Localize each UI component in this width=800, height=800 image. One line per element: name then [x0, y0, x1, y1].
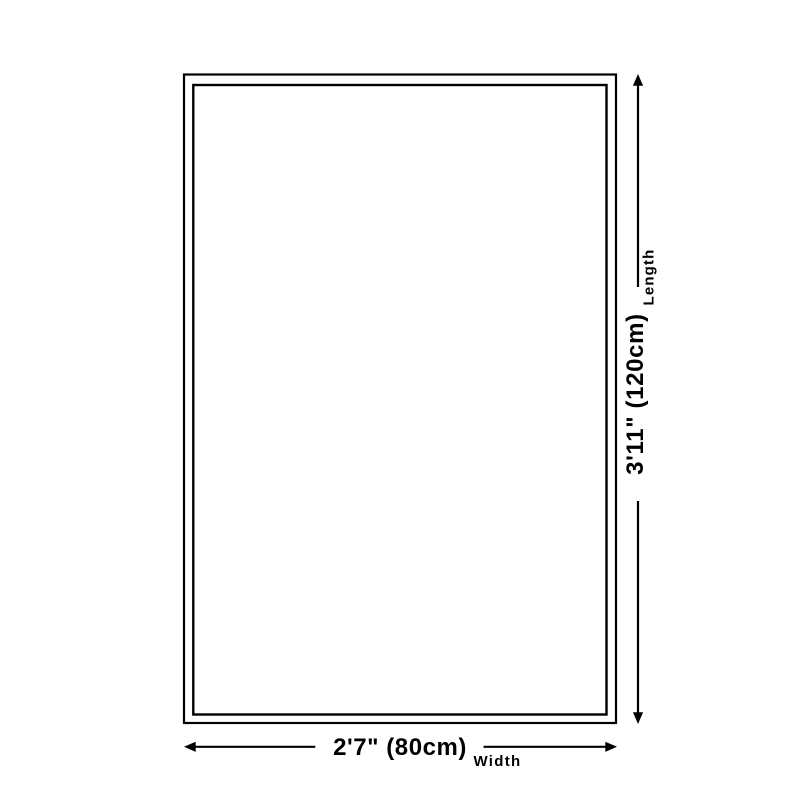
- svg-text:2'7" (80cm): 2'7" (80cm): [333, 734, 467, 761]
- svg-text:3'11" (120cm): 3'11" (120cm): [622, 313, 649, 475]
- svg-text:Length: Length: [641, 249, 658, 306]
- svg-text:Width: Width: [473, 753, 521, 770]
